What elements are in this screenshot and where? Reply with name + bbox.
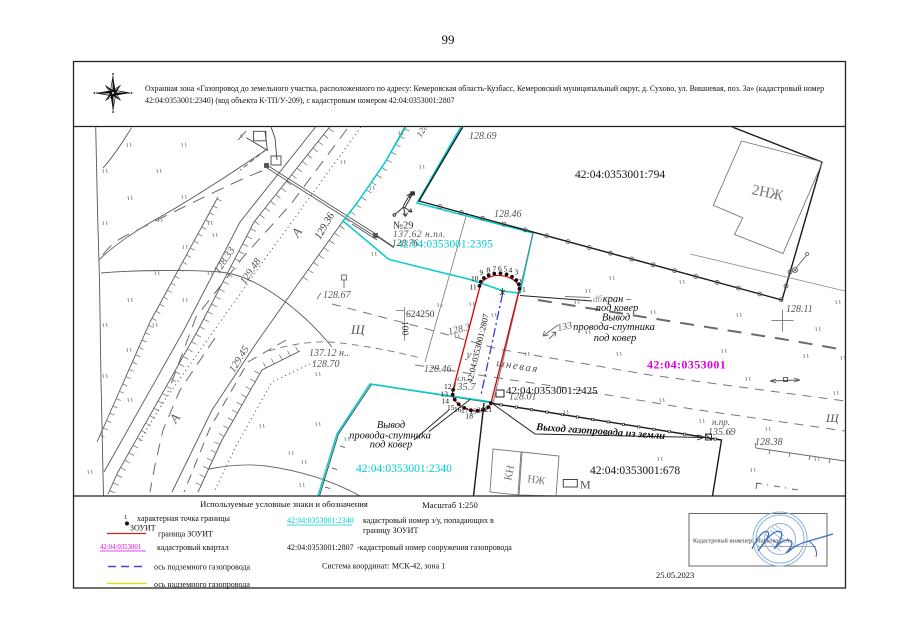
svg-text:кадастровый квартал: кадастровый квартал [157,543,229,552]
svg-text:1: 1 [522,285,526,294]
svg-text:н.пр.: н.пр. [712,417,730,427]
svg-text:128.76: 128.76 [392,239,418,249]
svg-text:42:04:0353001:794: 42:04:0353001:794 [575,169,665,181]
svg-text:21: 21 [485,405,493,414]
svg-text:128.67: 128.67 [323,290,352,301]
svg-text:НЖ: НЖ [527,473,546,487]
svg-text:99: 99 [442,32,455,47]
svg-text:характерная точка границы: характерная точка границы [137,514,231,523]
svg-text:границу ЗОУИТ: границу ЗОУИТ [363,526,418,535]
svg-text:42:04:0353001:2807: 42:04:0353001:2807 [287,543,354,552]
svg-text:128.46: 128.46 [424,364,452,375]
svg-text:42:04:0353001: 42:04:0353001 [647,358,726,372]
svg-text:9: 9 [480,268,484,277]
svg-text:42:04:0353001:2340: 42:04:0353001:2340 [287,516,354,525]
svg-text:под ковер: под ковер [370,440,413,451]
svg-text:под ковер: под ковер [594,333,637,344]
svg-text:Охранная зона «Газопровод до з: Охранная зона «Газопровод до земельного … [145,84,824,93]
svg-text:Система координат: МСК-42, зон: Система координат: МСК-42, зона 1 [322,562,445,571]
svg-text:10: 10 [471,274,479,283]
svg-text:Используемые условные знаки и: Используемые условные знаки и обозначени… [200,499,368,509]
svg-text:42:04:0353001:678: 42:04:0353001:678 [590,465,680,477]
svg-text:Вывод: Вывод [377,420,405,431]
svg-text:провода-спутника: провода-спутника [573,322,655,333]
svg-text:128.69: 128.69 [469,131,497,142]
svg-text:ось надземного газопровода: ось надземного газопровода [154,580,250,589]
svg-text:1: 1 [124,514,127,521]
svg-text:граница ЗОУИТ: граница ЗОУИТ [158,530,213,539]
svg-text:Кадастровый инженер: Маркова С: Кадастровый инженер: Маркова С.А. [693,538,792,545]
svg-text:135.69: 135.69 [708,427,736,438]
svg-text:42:04:0353001:2340) (код объек: 42:04:0353001:2340) (код объекта К-ТП/У-… [145,96,455,105]
svg-text:128.70: 128.70 [312,359,340,370]
svg-text:137.12 н..: 137.12 н.. [309,348,349,359]
svg-text:8: 8 [487,266,491,275]
svg-text:Щ: Щ [825,411,840,425]
svg-text:6: 6 [498,264,502,273]
svg-text:Масштаб 1:250: Масштаб 1:250 [422,500,478,510]
svg-text:11: 11 [470,283,477,292]
svg-text:128.01: 128.01 [509,392,537,403]
svg-text:42:04:0353001:2340: 42:04:0353001:2340 [356,463,452,475]
svg-text:128.38: 128.38 [755,437,783,448]
svg-text:25.05.2023: 25.05.2023 [656,570,694,580]
svg-text:М: М [580,478,591,492]
svg-text:3: 3 [515,268,519,277]
svg-text:ЗОУИТ: ЗОУИТ [130,524,156,533]
svg-text:5: 5 [504,265,508,274]
svg-text:624250: 624250 [406,310,435,320]
svg-text:ось подземного газопровода: ось подземного газопровода [154,563,251,572]
svg-text:42:04:0353001: 42:04:0353001 [100,544,141,551]
svg-text:4: 4 [509,266,513,275]
svg-text:кадастровый номер з/у, попадаю: кадастровый номер з/у, попадающих в [363,516,494,525]
svg-text:-кадастровый номер сооружения: -кадастровый номер сооружения газопровод… [357,543,512,552]
svg-text:Щ: Щ [350,322,366,337]
svg-text:128.11: 128.11 [786,304,813,315]
svg-text:128.46: 128.46 [494,209,522,220]
svg-text:100: 100 [399,321,409,336]
svg-text:7: 7 [493,265,497,274]
